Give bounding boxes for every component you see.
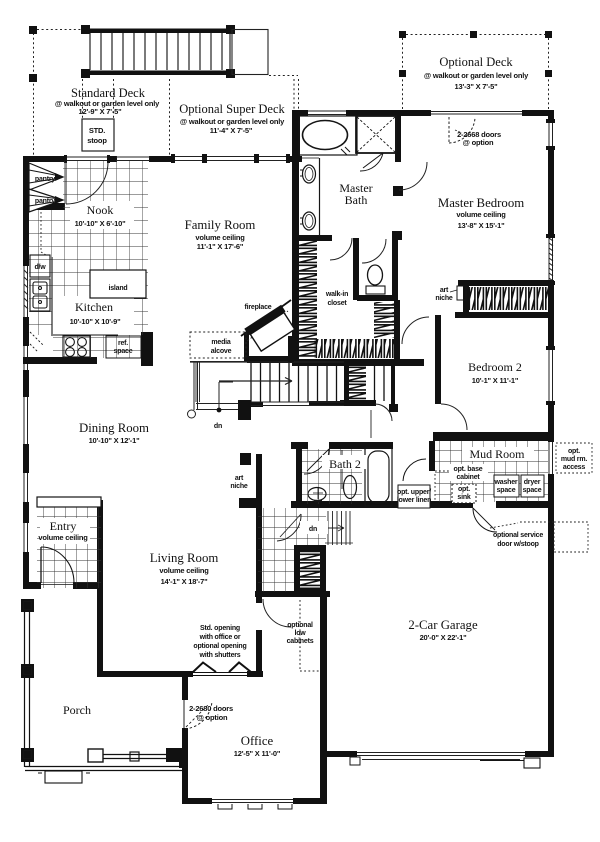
svg-text:lower linen: lower linen bbox=[397, 497, 431, 504]
svg-text:11'-1" X 17'-6": 11'-1" X 17'-6" bbox=[197, 242, 244, 251]
svg-text:Optional Deck: Optional Deck bbox=[439, 55, 513, 69]
svg-text:Standard Deck: Standard Deck bbox=[71, 86, 146, 100]
svg-text:12'-5" X 11'-0": 12'-5" X 11'-0" bbox=[234, 749, 281, 758]
svg-text:pantry: pantry bbox=[35, 176, 56, 183]
svg-text:10'-10" X 10'-9": 10'-10" X 10'-9" bbox=[70, 317, 121, 326]
svg-text:d/w: d/w bbox=[34, 264, 46, 271]
svg-text:Std. opening: Std. opening bbox=[200, 625, 240, 632]
svg-text:13'-3" X 7'-5": 13'-3" X 7'-5" bbox=[455, 82, 499, 91]
svg-text:niche: niche bbox=[230, 483, 248, 490]
svg-text:art: art bbox=[440, 287, 449, 294]
svg-text:media: media bbox=[211, 339, 231, 346]
svg-text:Porch: Porch bbox=[63, 703, 91, 717]
svg-text:mud rm.: mud rm. bbox=[561, 456, 587, 463]
svg-text:dn: dn bbox=[214, 423, 222, 430]
svg-text:volume ceiling: volume ceiling bbox=[195, 233, 245, 242]
svg-text:opt.: opt. bbox=[458, 486, 470, 493]
svg-text:Bedroom 2: Bedroom 2 bbox=[468, 360, 522, 374]
svg-text:Living Room: Living Room bbox=[150, 551, 219, 565]
svg-text:volume ceiling: volume ceiling bbox=[159, 566, 209, 575]
svg-text:opt.: opt. bbox=[568, 448, 580, 455]
svg-text:with office or: with office or bbox=[199, 634, 241, 641]
svg-text:dn: dn bbox=[309, 526, 317, 533]
svg-text:STD.: STD. bbox=[89, 126, 105, 135]
svg-text:walk-in: walk-in bbox=[325, 291, 348, 298]
svg-text:2-2680 doors: 2-2680 doors bbox=[189, 704, 233, 713]
svg-text:optional service: optional service bbox=[493, 532, 543, 539]
svg-text:volume ceiling: volume ceiling bbox=[38, 533, 88, 542]
svg-text:Dining Room: Dining Room bbox=[79, 421, 149, 435]
svg-text:14'-1" X 18'-7": 14'-1" X 18'-7" bbox=[161, 577, 209, 586]
svg-text:Family Room: Family Room bbox=[185, 218, 256, 232]
svg-text:Entry: Entry bbox=[50, 519, 77, 533]
svg-text:space: space bbox=[497, 487, 516, 494]
svg-text:access: access bbox=[563, 464, 585, 471]
svg-text:space: space bbox=[523, 487, 542, 494]
svg-text:11'-4" X 7'-5": 11'-4" X 7'-5" bbox=[210, 126, 253, 135]
svg-text:Mud Room: Mud Room bbox=[469, 447, 525, 461]
svg-text:opt. upper/: opt. upper/ bbox=[397, 489, 431, 496]
svg-text:ref.: ref. bbox=[118, 340, 128, 347]
svg-text:stoop: stoop bbox=[87, 136, 107, 145]
svg-text:sink: sink bbox=[457, 494, 471, 501]
svg-text:with shutters: with shutters bbox=[199, 652, 241, 659]
svg-text:dryer: dryer bbox=[524, 479, 541, 486]
svg-text:fireplace: fireplace bbox=[245, 304, 272, 311]
svg-text:island: island bbox=[108, 285, 127, 292]
svg-text:@ walkout or garden level only: @ walkout or garden level only bbox=[424, 71, 529, 80]
svg-text:pantry: pantry bbox=[35, 198, 56, 205]
svg-text:10'-1" X 11'-1": 10'-1" X 11'-1" bbox=[472, 376, 519, 385]
svg-text:opt. base: opt. base bbox=[454, 466, 483, 473]
svg-text:13'-8" X 15'-1": 13'-8" X 15'-1" bbox=[458, 221, 506, 230]
svg-text:alcove: alcove bbox=[211, 348, 232, 355]
svg-text:@ option: @ option bbox=[197, 713, 228, 722]
svg-text:10'-10" X 12'-1": 10'-10" X 12'-1" bbox=[89, 436, 140, 445]
svg-text:Optional Super Deck: Optional Super Deck bbox=[179, 102, 285, 116]
svg-text:Bath 2: Bath 2 bbox=[329, 457, 361, 471]
svg-text:door w/stoop: door w/stoop bbox=[497, 541, 539, 548]
svg-text:cabinet: cabinet bbox=[456, 474, 480, 481]
svg-text:20'-0" X 22'-1": 20'-0" X 22'-1" bbox=[420, 633, 468, 642]
svg-text:Bath: Bath bbox=[345, 193, 368, 207]
svg-text:12'-9" X 7'-5": 12'-9" X 7'-5" bbox=[79, 107, 123, 116]
svg-text:low: low bbox=[294, 630, 306, 637]
svg-text:niche: niche bbox=[435, 295, 453, 302]
svg-text:space: space bbox=[114, 348, 133, 355]
svg-text:Kitchen: Kitchen bbox=[75, 300, 113, 314]
svg-text:@ option: @ option bbox=[463, 138, 494, 147]
svg-text:Nook: Nook bbox=[87, 203, 114, 217]
svg-text:10'-10" X 6'-10": 10'-10" X 6'-10" bbox=[75, 219, 126, 228]
svg-text:2-Car Garage: 2-Car Garage bbox=[408, 618, 478, 632]
svg-text:washer: washer bbox=[494, 479, 518, 486]
svg-text:Office: Office bbox=[241, 734, 274, 748]
svg-text:cabinets: cabinets bbox=[287, 638, 314, 645]
svg-text:Master Bedroom: Master Bedroom bbox=[438, 196, 524, 210]
svg-text:@ walkout or garden level only: @ walkout or garden level only bbox=[180, 117, 285, 126]
svg-text:optional: optional bbox=[287, 622, 313, 629]
svg-text:volume ceiling: volume ceiling bbox=[456, 210, 506, 219]
svg-text:art: art bbox=[235, 475, 244, 482]
svg-text:closet: closet bbox=[327, 300, 347, 307]
svg-text:optional opening: optional opening bbox=[193, 643, 246, 650]
